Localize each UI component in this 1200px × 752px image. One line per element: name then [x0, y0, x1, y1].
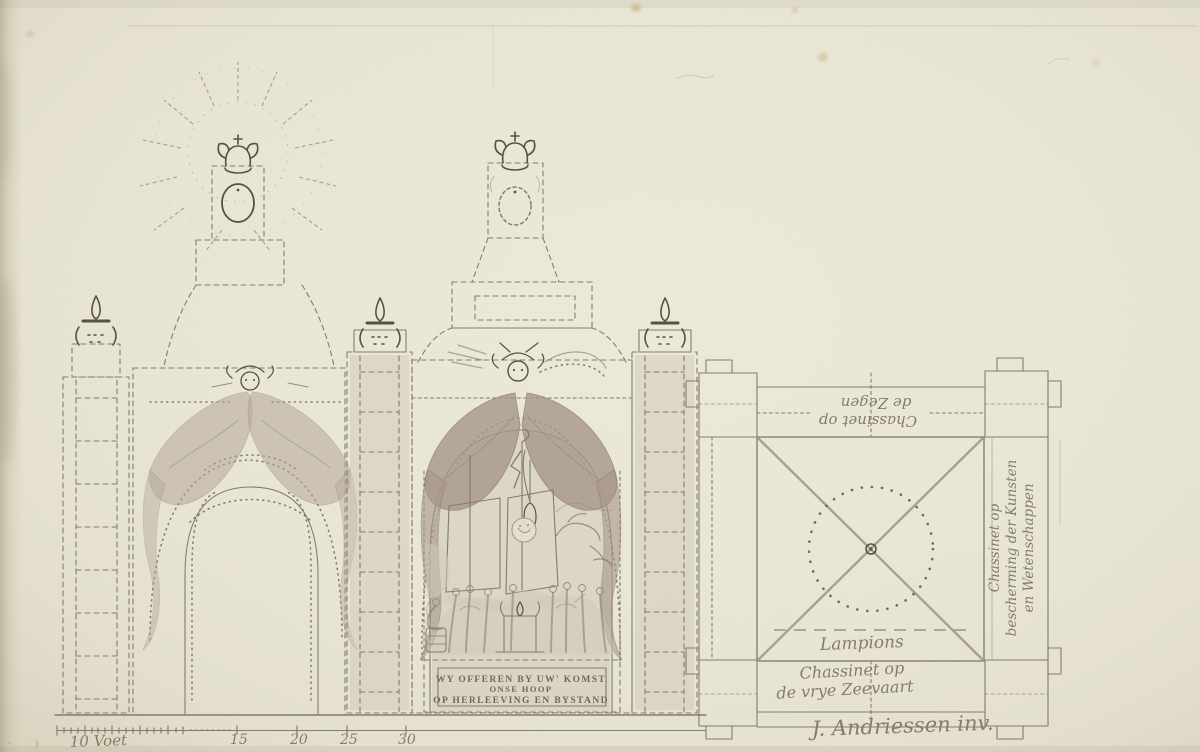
plan-right-label-line2: bescherming der Kunsten — [1004, 460, 1020, 637]
banner-line-2: ONSE HOOP — [490, 684, 553, 694]
plan-right-label-line1: Chassinet op — [987, 503, 1003, 592]
scale-label-15: 15 — [230, 732, 248, 748]
scale-label-30: 30 — [398, 732, 416, 748]
scale-label-20: 20 — [289, 732, 308, 748]
scale-label-10voet: 10 Voet — [70, 731, 129, 751]
plan-right-label-line3: en Wetenschappen — [1021, 483, 1037, 612]
foxing-stain — [631, 4, 641, 12]
banner-line-3: OP HERLEEVING EN BYSTAND — [433, 696, 609, 706]
drawing-canvas: WY OFFEREN BY UW' KOMST ONSE HOOP OP HER… — [0, 0, 1200, 752]
scale-label-25: 25 — [339, 732, 358, 748]
plan-center-point — [869, 547, 872, 550]
plan-top-label-line1: Chassinet op — [818, 412, 917, 430]
paper-sheet: WY OFFEREN BY UW' KOMST ONSE HOOP OP HER… — [0, 0, 1200, 752]
middle-pier — [347, 298, 412, 713]
lampions-label: Lampions — [819, 632, 905, 655]
right-pier — [632, 298, 697, 713]
plan-top-label-line2: de Zegen — [841, 394, 912, 412]
